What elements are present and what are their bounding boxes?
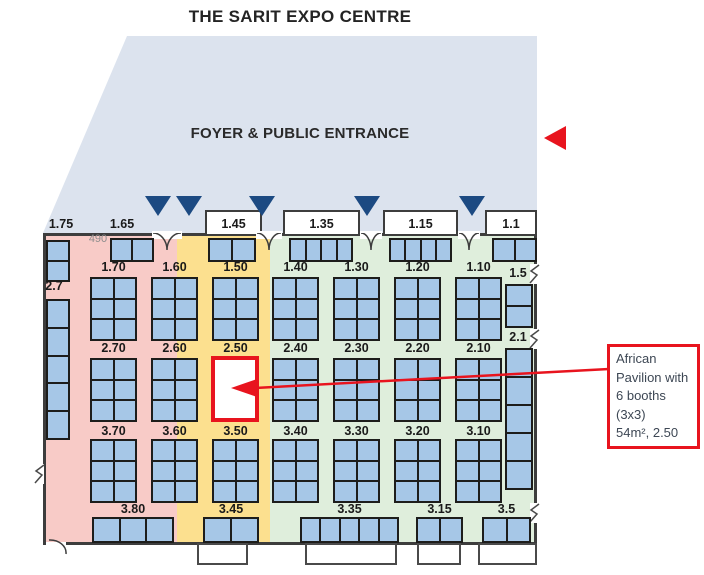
booth-cell [507, 434, 531, 460]
booth-cell [391, 240, 404, 260]
booth-cell [153, 462, 174, 481]
booth-cell [92, 300, 113, 319]
booth-cell [153, 381, 174, 400]
booth-cell [115, 279, 136, 298]
booth-cell [153, 401, 174, 420]
annotation-line: 54m², 2.50 [616, 424, 695, 443]
booth-cell [480, 441, 501, 460]
booth-cell [205, 519, 230, 541]
booth-cell [480, 381, 501, 400]
booth-cell [358, 320, 379, 339]
booth-cell [358, 401, 379, 420]
map-label-2.7: 2.7 [38, 279, 70, 293]
booth-cell [396, 300, 417, 319]
booth-cell [115, 360, 136, 379]
booth-block [394, 439, 441, 503]
booth-cell [358, 441, 379, 460]
booth-cell [115, 401, 136, 420]
booth-cell [422, 240, 435, 260]
booth-cell [419, 441, 440, 460]
booth-block [394, 358, 441, 422]
booth-cell [508, 519, 530, 541]
booth-cell [297, 300, 318, 319]
booth-cell [335, 381, 356, 400]
bottom-bay [197, 543, 248, 565]
booth-cell [92, 320, 113, 339]
booth-block [455, 439, 502, 503]
booth-cell [237, 300, 258, 319]
booth-cell [274, 300, 295, 319]
map-label-3.35: 3.35 [300, 502, 399, 516]
booth-block [389, 238, 452, 262]
booth-cell [133, 240, 152, 260]
booth-cell [457, 360, 478, 379]
booth-cell [176, 279, 197, 298]
booth-cell [92, 279, 113, 298]
booth-cell [214, 320, 235, 339]
booth-block [416, 517, 463, 543]
booth-cell [48, 384, 68, 410]
booth-cell [176, 381, 197, 400]
booth-cell [341, 519, 358, 541]
map-label-1.10: 1.10 [455, 260, 502, 274]
entrance-arrow-icon [176, 196, 202, 216]
map-label-1.50: 1.50 [212, 260, 259, 274]
wall-break-icon [33, 464, 46, 484]
booth-cell [297, 320, 318, 339]
map-label-1.65: 1.65 [101, 217, 143, 231]
booth-cell [92, 462, 113, 481]
booth-cell [335, 441, 356, 460]
booth-cell [480, 482, 501, 501]
booth-cell [214, 300, 235, 319]
booth-cell [302, 519, 319, 541]
booth-cell [457, 462, 478, 481]
page-title: THE SARIT EXPO CENTRE [100, 7, 500, 27]
annotation-line: Pavilion with [616, 369, 695, 388]
map-label-3.5: 3.5 [482, 502, 531, 516]
map-label-3.20: 3.20 [394, 424, 441, 438]
booth-cell [335, 300, 356, 319]
annotation-line: African [616, 350, 695, 369]
booth-block [151, 277, 198, 341]
booth-cell [48, 412, 68, 438]
booth-cell [176, 462, 197, 481]
map-label-1.60: 1.60 [151, 260, 198, 274]
booth-cell [396, 482, 417, 501]
booth-cell [297, 381, 318, 400]
booth-cell [121, 519, 146, 541]
booth-cell [321, 519, 338, 541]
booth-cell [48, 262, 68, 280]
booth-cell [335, 320, 356, 339]
map-label-3.40: 3.40 [272, 424, 319, 438]
booth-block [110, 238, 154, 262]
booth-block [300, 517, 399, 543]
map-label-1.35: 1.35 [283, 217, 360, 231]
booth-cell [396, 401, 417, 420]
map-label-2.50: 2.50 [212, 341, 259, 355]
booth-cell [396, 462, 417, 481]
booth-cell [516, 240, 536, 260]
booth-cell [419, 381, 440, 400]
booth-cell [115, 320, 136, 339]
booth-cell [297, 441, 318, 460]
booth-cell [297, 360, 318, 379]
door-icon [360, 233, 382, 251]
booth-cell [274, 441, 295, 460]
map-label-1.45: 1.45 [205, 217, 262, 231]
booth-block [333, 277, 380, 341]
booth-cell [297, 462, 318, 481]
map-label-490: 490 [80, 232, 116, 246]
booth-cell [480, 300, 501, 319]
booth-cell [94, 519, 119, 541]
booth-cell [210, 240, 231, 260]
booth-cell [437, 240, 450, 260]
booth-block [455, 277, 502, 341]
booth-cell [153, 279, 174, 298]
booth-cell [480, 462, 501, 481]
floor-plan-map: 1.751.651.451.351.151.14902.71.52.11.701… [0, 0, 704, 575]
booth-cell [153, 320, 174, 339]
map-label-3.10: 3.10 [455, 424, 502, 438]
booth-cell [441, 519, 462, 541]
booth-cell [153, 360, 174, 379]
map-label-1.40: 1.40 [272, 260, 319, 274]
booth-block [151, 439, 198, 503]
booth-cell [214, 482, 235, 501]
booth-cell [396, 360, 417, 379]
bottom-bay [478, 543, 537, 565]
booth-cell [115, 381, 136, 400]
booth-cell [322, 240, 336, 260]
booth-cell [274, 320, 295, 339]
entrance-arrow-icon [354, 196, 380, 216]
booth-cell [335, 482, 356, 501]
map-label-3.30: 3.30 [333, 424, 380, 438]
booth-cell [237, 462, 258, 481]
map-label-3.80: 3.80 [92, 502, 174, 516]
map-label-3.15: 3.15 [416, 502, 463, 516]
booth-block [333, 439, 380, 503]
booth-cell [396, 381, 417, 400]
booth-block [208, 238, 256, 262]
booth-block [203, 517, 259, 543]
foyer-arrow-icon [544, 126, 566, 150]
booth-cell [419, 279, 440, 298]
booth-cell [115, 441, 136, 460]
door-icon [256, 233, 282, 251]
bottom-bay [417, 543, 461, 565]
entrance-arrow-icon [145, 196, 171, 216]
booth-cell [237, 441, 258, 460]
booth-cell [360, 519, 377, 541]
booth-cell [419, 360, 440, 379]
map-label-3.50: 3.50 [212, 424, 259, 438]
booth-block [212, 277, 259, 341]
annotation-line: 6 booths [616, 387, 695, 406]
map-label-1.20: 1.20 [394, 260, 441, 274]
booth-block [272, 277, 319, 341]
door-icon [458, 233, 480, 251]
booth-cell [307, 240, 321, 260]
booth-cell [335, 360, 356, 379]
map-label-1.75: 1.75 [40, 217, 82, 231]
map-label-2.10: 2.10 [455, 341, 502, 355]
booth-cell [48, 301, 68, 327]
map-label-3.45: 3.45 [203, 502, 259, 516]
booth-cell [274, 381, 295, 400]
booth-cell [396, 441, 417, 460]
booth-cell [115, 462, 136, 481]
booth-cell [419, 300, 440, 319]
booth-cell [507, 286, 531, 305]
map-label-1.30: 1.30 [333, 260, 380, 274]
booth-block [151, 358, 198, 422]
map-label-2.40: 2.40 [272, 341, 319, 355]
map-label-1.1: 1.1 [485, 217, 537, 231]
map-label-1.70: 1.70 [90, 260, 137, 274]
booth-cell [297, 401, 318, 420]
booth-cell [274, 360, 295, 379]
booth-cell [457, 441, 478, 460]
booth-cell [480, 279, 501, 298]
door-icon [152, 233, 182, 251]
map-label-2.20: 2.20 [394, 341, 441, 355]
booth-cell [176, 441, 197, 460]
booth-cell [358, 279, 379, 298]
booth-cell [153, 441, 174, 460]
booth-cell [115, 482, 136, 501]
booth-cell [274, 462, 295, 481]
booth-cell [291, 240, 305, 260]
bottom-bay [305, 543, 397, 565]
booth-cell [176, 320, 197, 339]
booth-cell [419, 320, 440, 339]
booth-cell [214, 441, 235, 460]
booth-block [90, 358, 137, 422]
booth-cell [358, 360, 379, 379]
booth-cell [176, 401, 197, 420]
entrance-arrow-icon [249, 196, 275, 216]
entrance-arrow-icon [459, 196, 485, 216]
booth-cell [480, 320, 501, 339]
booth-cell [457, 320, 478, 339]
booth-cell [419, 401, 440, 420]
map-label-3.70: 3.70 [90, 424, 137, 438]
booth-cell [297, 482, 318, 501]
map-label-2.1: 2.1 [501, 330, 535, 344]
booth-cell [274, 279, 295, 298]
booth-block [505, 284, 533, 328]
booth-cell [92, 441, 113, 460]
booth-cell [233, 240, 254, 260]
booth-cell [237, 279, 258, 298]
map-label-2.30: 2.30 [333, 341, 380, 355]
booth-block [455, 358, 502, 422]
booth-cell [48, 242, 68, 260]
highlighted-booth [211, 356, 259, 422]
booth-cell [457, 279, 478, 298]
booth-cell [338, 240, 352, 260]
booth-cell [406, 240, 419, 260]
booth-cell [147, 519, 172, 541]
booth-cell [176, 482, 197, 501]
booth-block [272, 439, 319, 503]
booth-cell [396, 320, 417, 339]
booth-cell [153, 482, 174, 501]
booth-cell [92, 381, 113, 400]
booth-cell [92, 482, 113, 501]
booth-cell [457, 300, 478, 319]
booth-cell [274, 482, 295, 501]
booth-cell [92, 401, 113, 420]
map-label-1.15: 1.15 [383, 217, 458, 231]
booth-cell [457, 401, 478, 420]
booth-cell [274, 401, 295, 420]
booth-cell [480, 360, 501, 379]
booth-cell [396, 279, 417, 298]
booth-cell [335, 462, 356, 481]
floor-plan-canvas: 1.751.651.451.351.151.14902.71.52.11.701… [0, 0, 704, 575]
booth-cell [358, 300, 379, 319]
booth-cell [237, 320, 258, 339]
booth-cell [507, 350, 531, 376]
booth-block [212, 439, 259, 503]
annotation-box: AfricanPavilion with6 booths(3x3)54m², 2… [607, 344, 700, 449]
booth-cell [418, 519, 439, 541]
booth-block [90, 439, 137, 503]
booth-cell [335, 401, 356, 420]
booth-block [482, 517, 531, 543]
booth-cell [358, 482, 379, 501]
booth-cell [237, 482, 258, 501]
map-label-1.5: 1.5 [501, 266, 535, 280]
booth-cell [380, 519, 397, 541]
booth-block [394, 277, 441, 341]
booth-cell [480, 401, 501, 420]
booth-cell [176, 360, 197, 379]
booth-cell [457, 482, 478, 501]
booth-block [289, 238, 353, 262]
booth-cell [419, 482, 440, 501]
booth-block [505, 348, 533, 490]
booth-block [46, 240, 70, 282]
booth-cell [214, 462, 235, 481]
booth-cell [457, 381, 478, 400]
booth-cell [507, 406, 531, 432]
booth-block [46, 299, 70, 440]
arc-door-icon [46, 539, 68, 555]
booth-cell [115, 300, 136, 319]
booth-cell [92, 360, 113, 379]
booth-cell [358, 462, 379, 481]
booth-cell [153, 300, 174, 319]
booth-cell [48, 357, 68, 383]
map-label-2.70: 2.70 [90, 341, 137, 355]
booth-cell [232, 519, 257, 541]
annotation-text: AfricanPavilion with6 booths(3x3)54m², 2… [616, 350, 695, 443]
map-label-3.60: 3.60 [151, 424, 198, 438]
booth-block [492, 238, 537, 262]
booth-cell [419, 462, 440, 481]
annotation-line: (3x3) [616, 406, 695, 425]
booth-block [90, 277, 137, 341]
booth-cell [358, 381, 379, 400]
booth-block [272, 358, 319, 422]
booth-block [333, 358, 380, 422]
booth-cell [176, 300, 197, 319]
booth-cell [335, 279, 356, 298]
booth-cell [484, 519, 506, 541]
booth-cell [48, 329, 68, 355]
booth-cell [214, 279, 235, 298]
foyer-label: FOYER & PUBLIC ENTRANCE [100, 125, 500, 142]
booth-block [92, 517, 174, 543]
booth-cell [507, 462, 531, 488]
booth-cell [507, 307, 531, 326]
map-label-2.60: 2.60 [151, 341, 198, 355]
booth-cell [507, 378, 531, 404]
booth-cell [494, 240, 514, 260]
booth-cell [297, 279, 318, 298]
